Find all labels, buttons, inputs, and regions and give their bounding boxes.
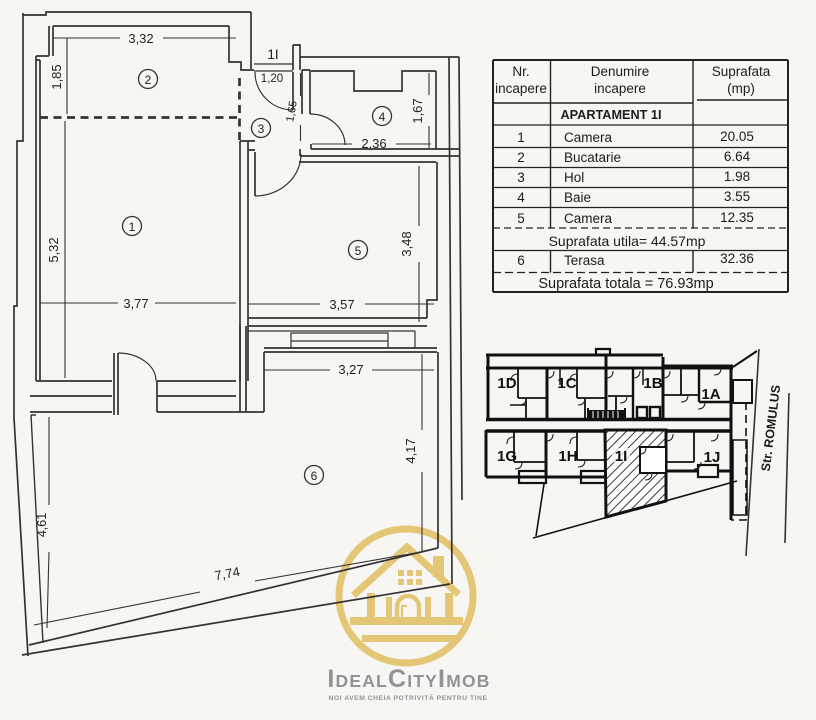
svg-text:Suprafata: Suprafata xyxy=(712,64,771,79)
svg-text:NOI AVEM CHEIA POTRIVITĂ PENTR: NOI AVEM CHEIA POTRIVITĂ PENTRU TINE xyxy=(329,693,488,702)
svg-text:1,67: 1,67 xyxy=(410,98,425,123)
svg-text:Camera: Camera xyxy=(564,130,613,145)
svg-text:5: 5 xyxy=(355,244,362,258)
svg-text:1I: 1I xyxy=(615,448,628,465)
svg-text:4,61: 4,61 xyxy=(35,513,49,537)
svg-text:1C: 1C xyxy=(557,375,576,392)
svg-text:12.35: 12.35 xyxy=(720,210,754,225)
svg-text:1J: 1J xyxy=(704,449,721,466)
svg-text:3: 3 xyxy=(258,122,265,136)
svg-text:4,17: 4,17 xyxy=(403,438,418,463)
svg-text:4: 4 xyxy=(517,190,525,205)
svg-text:4: 4 xyxy=(379,110,386,124)
svg-text:incapere: incapere xyxy=(495,81,547,96)
svg-text:5: 5 xyxy=(517,211,525,226)
svg-text:Hol: Hol xyxy=(564,170,584,185)
svg-text:3,32: 3,32 xyxy=(128,31,153,46)
svg-text:Camera: Camera xyxy=(564,211,613,226)
svg-text:1H: 1H xyxy=(558,448,577,465)
svg-text:1A: 1A xyxy=(701,386,720,403)
svg-text:1: 1 xyxy=(129,220,136,234)
svg-text:2: 2 xyxy=(517,150,525,165)
svg-text:1,20: 1,20 xyxy=(261,73,283,85)
svg-text:3,27: 3,27 xyxy=(338,362,363,377)
svg-text:Bucatarie: Bucatarie xyxy=(564,150,621,165)
svg-text:1G: 1G xyxy=(497,448,517,465)
svg-text:Suprafata utila= 44.57mp: Suprafata utila= 44.57mp xyxy=(549,233,706,249)
svg-text:(mp): (mp) xyxy=(727,81,755,96)
svg-text:1I: 1I xyxy=(267,47,278,62)
svg-text:3,77: 3,77 xyxy=(123,296,148,311)
svg-text:1,85: 1,85 xyxy=(49,64,64,89)
svg-text:3.55: 3.55 xyxy=(724,189,750,204)
svg-text:32.36: 32.36 xyxy=(720,251,754,266)
svg-text:6: 6 xyxy=(517,253,525,268)
svg-text:3: 3 xyxy=(517,170,525,185)
svg-text:3,57: 3,57 xyxy=(329,297,354,312)
svg-text:1B: 1B xyxy=(643,375,662,392)
svg-text:3,48: 3,48 xyxy=(399,231,414,256)
svg-text:6.64: 6.64 xyxy=(724,149,751,164)
svg-text:1D: 1D xyxy=(497,375,516,392)
svg-text:Baie: Baie xyxy=(564,190,591,205)
svg-text:5,32: 5,32 xyxy=(46,237,61,262)
svg-text:20.05: 20.05 xyxy=(720,129,754,144)
svg-text:Denumire: Denumire xyxy=(591,64,650,79)
svg-text:1: 1 xyxy=(517,130,525,145)
svg-text:1.98: 1.98 xyxy=(724,169,750,184)
svg-text:2: 2 xyxy=(145,73,152,87)
svg-text:Terasa: Terasa xyxy=(564,253,605,268)
svg-text:Suprafata totala = 76.93mp: Suprafata totala = 76.93mp xyxy=(538,276,713,292)
svg-text:incapere: incapere xyxy=(594,81,646,96)
svg-text:6: 6 xyxy=(311,469,318,483)
svg-text:Nr.: Nr. xyxy=(512,64,529,79)
svg-text:APARTAMENT 1I: APARTAMENT 1I xyxy=(560,108,661,122)
